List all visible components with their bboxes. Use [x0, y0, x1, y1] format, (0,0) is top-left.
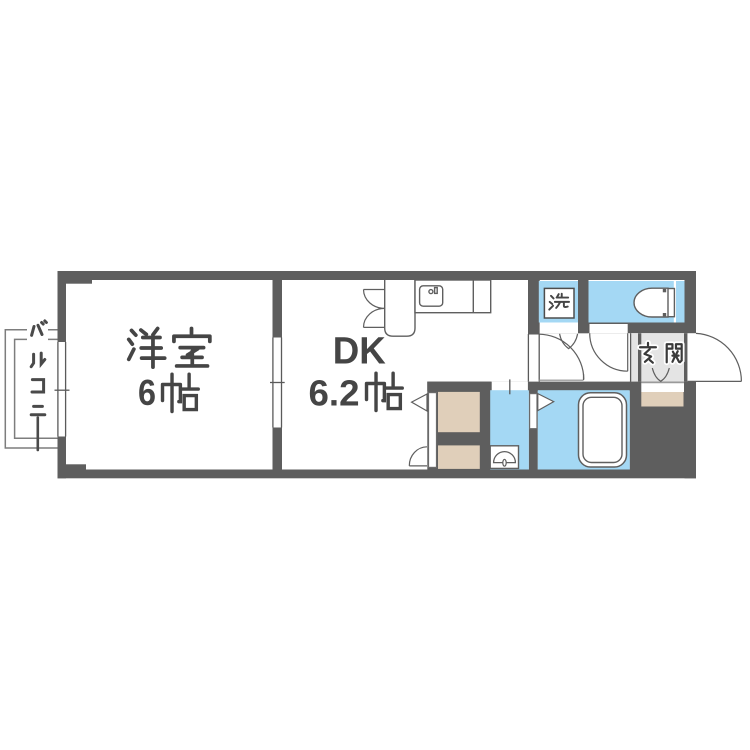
svg-text:6: 6: [138, 372, 156, 413]
svg-text:6.2: 6.2: [309, 373, 360, 414]
svg-text:DK: DK: [333, 330, 387, 372]
